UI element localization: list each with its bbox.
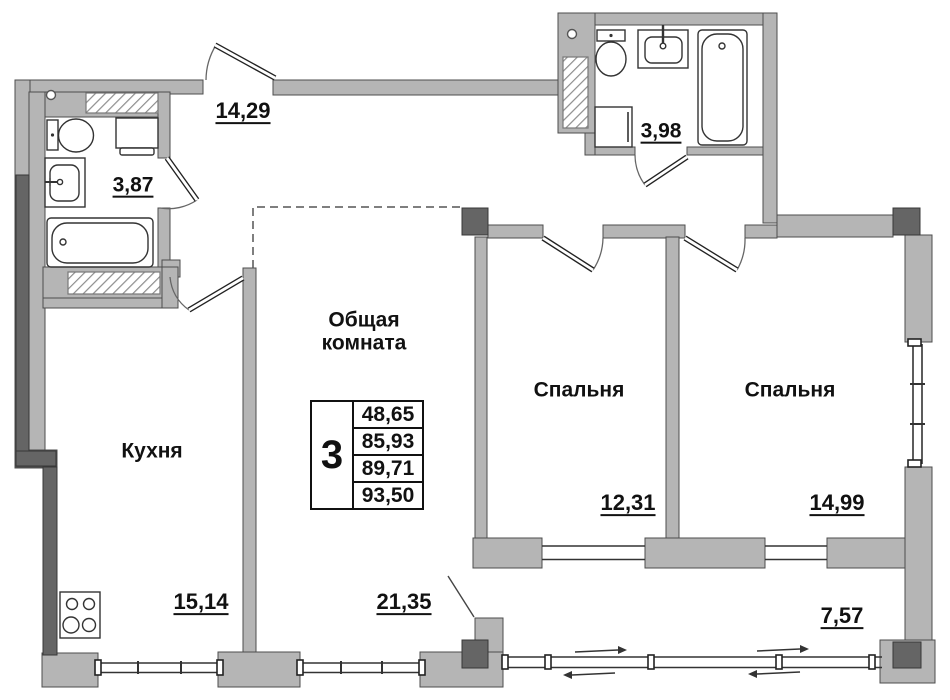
kitchen-label: Кухня (121, 441, 182, 464)
bathtub (47, 218, 153, 267)
area-value-cell: 85,93 (354, 429, 422, 456)
dashed-boundary (253, 207, 462, 268)
sink (45, 158, 85, 207)
bathtub (698, 30, 747, 145)
area-value-cell: 89,71 (354, 456, 422, 483)
bedroom2-area-label: 14,99 (809, 491, 864, 515)
bedroom2-door-leaf (685, 238, 737, 270)
living-room-label-line1: Общая (322, 309, 407, 332)
area-value-cell: 48,65 (354, 402, 422, 429)
living-area-label: 21,35 (376, 590, 431, 614)
bathroom2-door-leaf (645, 157, 687, 185)
sink (638, 25, 688, 68)
bedroom2-balcony-window (765, 546, 827, 560)
bathroom1-door-leaf (167, 158, 197, 200)
bathroom2-area-label: 3,98 (641, 121, 682, 144)
kitchen-door-leaf (189, 278, 243, 310)
bedroom1-label: Спальня (534, 380, 625, 403)
sliding-arrow-icon (563, 645, 809, 679)
column (462, 208, 488, 235)
kitchen-area-label: 15,14 (173, 590, 228, 614)
balcony-window (502, 645, 882, 679)
walls-layer (15, 13, 935, 687)
kitchen-window (95, 660, 223, 675)
area-value-cell: 93,50 (354, 483, 422, 508)
bedroom1-balcony-window (542, 546, 645, 560)
bedroom1-door-leaf (543, 238, 593, 270)
column (893, 208, 920, 235)
washing-machine (116, 118, 158, 155)
living-window (297, 660, 425, 675)
floor-plan-drawing (0, 0, 950, 700)
stove (60, 592, 100, 638)
balcony-area-label: 7,57 (821, 604, 864, 628)
living-room-label: Общая комната (322, 309, 407, 354)
hall-area-label: 14,29 (215, 99, 270, 123)
balcony-door-leaf (448, 576, 474, 617)
bedroom1-area-label: 12,31 (600, 491, 655, 515)
column (893, 642, 921, 668)
column (462, 640, 488, 668)
apartment-info-table: 3 48,65 85,93 89,71 93,50 (310, 400, 424, 510)
living-room-label-line2: комната (322, 332, 407, 355)
wall-circle-marker (568, 30, 577, 39)
bedroom2-label: Спальня (745, 380, 836, 403)
bedroom2-door-arc (737, 238, 745, 270)
bathroom2-door-arc (635, 155, 645, 185)
toilet (596, 30, 626, 76)
toilet (47, 119, 94, 152)
entry-door-leaf (215, 45, 275, 78)
floor-plan: 14,29 3,87 3,98 Общая комната Кухня Спал… (0, 0, 950, 700)
bedroom1-door-arc (593, 238, 603, 270)
left-wall-dark-strip (16, 175, 29, 463)
bathroom1-door-arc (160, 200, 197, 209)
wall-circle-marker (47, 91, 56, 100)
entry-door-arc (206, 45, 216, 80)
washing-machine (595, 107, 632, 147)
bedroom2-window (908, 339, 925, 467)
bathroom1-area-label: 3,87 (113, 175, 154, 198)
areas-column: 48,65 85,93 89,71 93,50 (354, 402, 422, 508)
rooms-count-cell: 3 (312, 402, 354, 508)
